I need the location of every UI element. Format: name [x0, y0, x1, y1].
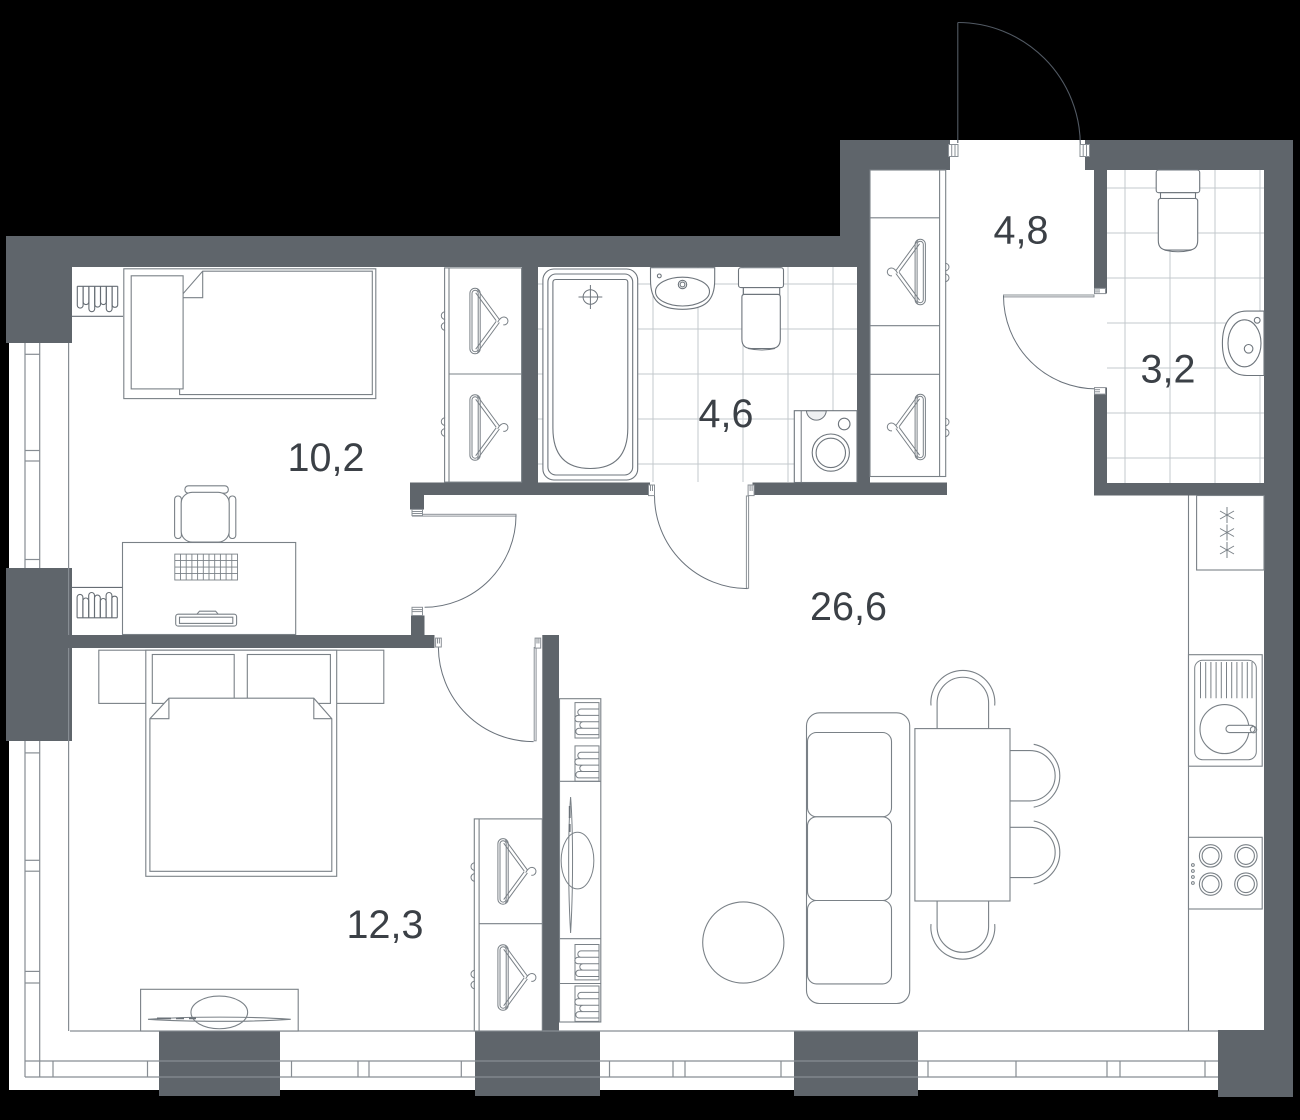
svg-text:3,2: 3,2	[1141, 348, 1196, 392]
svg-text:26,6: 26,6	[810, 585, 887, 629]
svg-text:4,8: 4,8	[994, 209, 1049, 253]
svg-text:12,3: 12,3	[347, 903, 424, 947]
svg-text:10,2: 10,2	[288, 436, 365, 480]
svg-text:4,6: 4,6	[699, 392, 754, 436]
